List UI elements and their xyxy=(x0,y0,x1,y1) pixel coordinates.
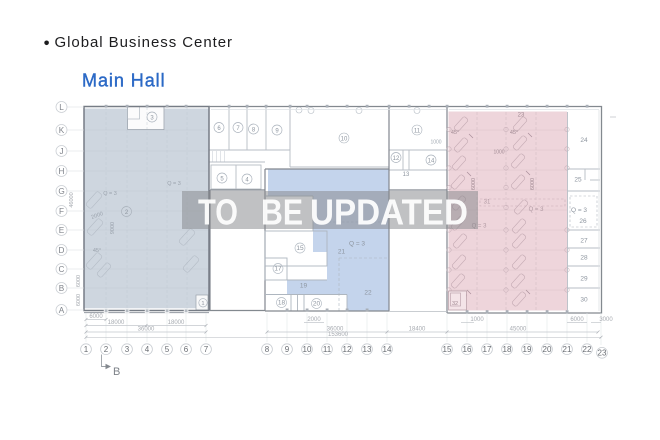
svg-text:G: G xyxy=(58,187,64,196)
svg-text:4: 4 xyxy=(245,177,249,183)
svg-text:5: 5 xyxy=(165,345,170,354)
svg-text:6000: 6000 xyxy=(76,275,82,287)
svg-text:12: 12 xyxy=(343,345,352,354)
svg-text:Global Business Center: Global Business Center xyxy=(55,34,233,51)
svg-text:21: 21 xyxy=(563,345,572,354)
svg-text:1000: 1000 xyxy=(430,140,441,146)
svg-text:12: 12 xyxy=(393,156,400,162)
svg-text:18000: 18000 xyxy=(108,320,125,326)
svg-text:E: E xyxy=(59,226,65,235)
svg-text:13: 13 xyxy=(403,172,410,178)
svg-text:19: 19 xyxy=(300,283,308,290)
svg-text:2: 2 xyxy=(104,345,109,354)
svg-text:18000: 18000 xyxy=(168,320,185,326)
svg-text:B: B xyxy=(113,366,120,378)
svg-text:45°: 45° xyxy=(510,130,518,136)
svg-text:TO: TO xyxy=(198,192,238,233)
svg-text:11: 11 xyxy=(414,128,421,134)
svg-text:Q = 3: Q = 3 xyxy=(571,207,587,214)
svg-text:J: J xyxy=(59,147,63,156)
svg-text:27: 27 xyxy=(580,238,588,245)
svg-text:9: 9 xyxy=(275,128,279,134)
svg-text:153600: 153600 xyxy=(328,332,349,338)
svg-text:11: 11 xyxy=(323,345,332,354)
svg-text:BE: BE xyxy=(261,192,303,233)
svg-text:20: 20 xyxy=(313,301,321,308)
svg-text:17: 17 xyxy=(274,266,282,273)
svg-text:14: 14 xyxy=(383,345,392,354)
svg-text:C: C xyxy=(59,265,65,274)
svg-text:6000: 6000 xyxy=(471,178,477,190)
svg-text:8: 8 xyxy=(265,345,270,354)
svg-text:H: H xyxy=(59,167,65,176)
svg-text:7: 7 xyxy=(204,345,209,354)
svg-text:A: A xyxy=(59,306,65,315)
svg-text:3: 3 xyxy=(125,345,130,354)
svg-text:22: 22 xyxy=(364,290,372,297)
svg-text:B: B xyxy=(59,284,65,293)
svg-text:28: 28 xyxy=(580,255,588,262)
svg-text:Main Hall: Main Hall xyxy=(82,70,166,90)
svg-text:15: 15 xyxy=(296,245,304,252)
svg-text:9000: 9000 xyxy=(110,222,116,234)
svg-text:Q = 3: Q = 3 xyxy=(103,191,117,197)
svg-text:7: 7 xyxy=(236,126,240,132)
svg-text:16: 16 xyxy=(463,345,472,354)
svg-text:46000: 46000 xyxy=(69,192,75,207)
svg-text:18: 18 xyxy=(503,345,512,354)
svg-text:Q = 3: Q = 3 xyxy=(349,241,365,248)
svg-text:25: 25 xyxy=(574,177,582,184)
svg-text:17: 17 xyxy=(483,345,492,354)
svg-text:26: 26 xyxy=(579,218,587,225)
svg-text:UPDATED: UPDATED xyxy=(310,192,468,233)
svg-text:6000: 6000 xyxy=(570,317,584,323)
svg-text:6: 6 xyxy=(184,345,189,354)
svg-text:9: 9 xyxy=(285,345,290,354)
svg-text:19: 19 xyxy=(523,345,532,354)
svg-text:45°: 45° xyxy=(451,130,459,136)
svg-text:45000: 45000 xyxy=(510,327,527,333)
svg-text:23: 23 xyxy=(598,349,607,358)
svg-text:32: 32 xyxy=(452,301,458,307)
svg-text:1: 1 xyxy=(84,345,89,354)
svg-text:10: 10 xyxy=(303,345,312,354)
svg-text:6000: 6000 xyxy=(89,314,103,320)
svg-text:1: 1 xyxy=(201,301,204,307)
svg-text:22: 22 xyxy=(583,345,592,354)
svg-text:18: 18 xyxy=(278,300,286,307)
svg-text:Q = 3: Q = 3 xyxy=(529,207,545,213)
svg-text:L: L xyxy=(59,103,64,112)
svg-text:10: 10 xyxy=(341,136,348,142)
svg-text:36000: 36000 xyxy=(138,327,155,333)
svg-text:6: 6 xyxy=(217,126,221,132)
svg-text:24: 24 xyxy=(580,137,588,144)
svg-text:8: 8 xyxy=(252,127,256,133)
svg-text:4: 4 xyxy=(145,345,150,354)
svg-text:D: D xyxy=(59,246,65,255)
svg-text:6000: 6000 xyxy=(76,294,82,306)
svg-text:29: 29 xyxy=(580,276,588,283)
svg-text:45°: 45° xyxy=(93,248,101,254)
svg-text:3000: 3000 xyxy=(599,317,613,323)
svg-text:14: 14 xyxy=(428,158,435,164)
svg-text:13: 13 xyxy=(363,345,372,354)
svg-text:21: 21 xyxy=(338,249,346,256)
svg-text:6000: 6000 xyxy=(530,178,536,190)
svg-text:1000: 1000 xyxy=(493,150,504,156)
svg-text:Q = 3: Q = 3 xyxy=(167,181,181,187)
svg-text:K: K xyxy=(59,126,65,135)
svg-text:5: 5 xyxy=(220,176,224,182)
svg-text:20: 20 xyxy=(543,345,552,354)
svg-text:23: 23 xyxy=(518,113,525,119)
svg-text:30: 30 xyxy=(580,297,588,304)
svg-text:18400: 18400 xyxy=(409,327,426,333)
svg-text:F: F xyxy=(59,207,64,216)
svg-text:15: 15 xyxy=(443,345,452,354)
svg-text:31: 31 xyxy=(484,200,491,206)
svg-text:2000: 2000 xyxy=(307,317,321,323)
svg-text:1000: 1000 xyxy=(470,317,484,323)
